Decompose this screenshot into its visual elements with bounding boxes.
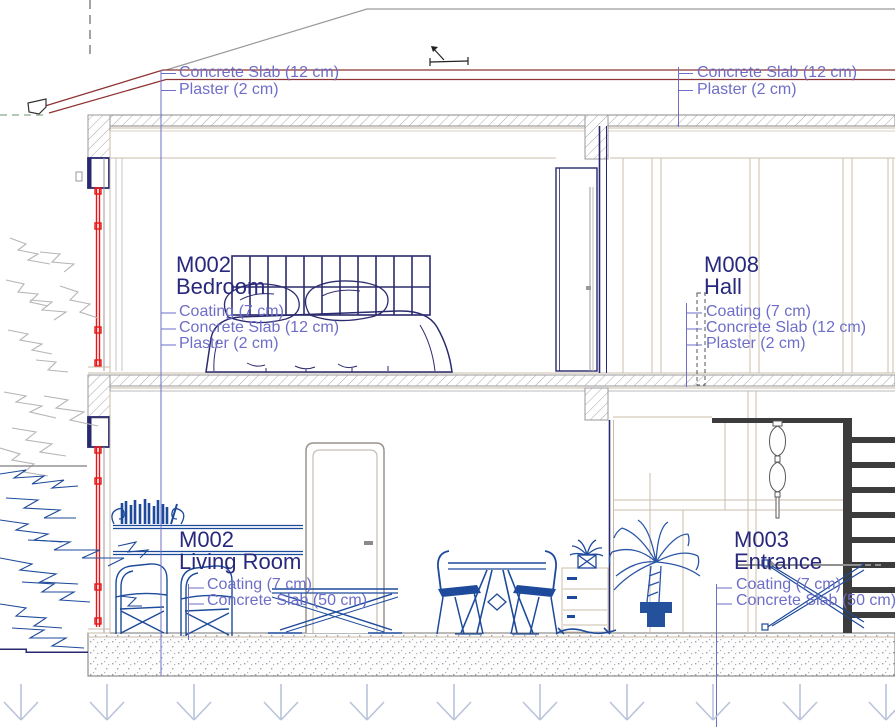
stair-treads — [852, 437, 895, 618]
room-code-hall[interactable]: M008 — [704, 254, 759, 276]
bedroom-door[interactable] — [556, 168, 597, 371]
layer-callout[interactable]: Concrete Slab (50 cm) — [207, 593, 367, 609]
layer-callout[interactable]: Coating (7 cm) — [179, 304, 284, 320]
potted-plant — [570, 540, 603, 568]
left-wall-window-lower[interactable] — [88, 391, 110, 633]
layer-callout[interactable]: Concrete Slab (50 cm) — [736, 593, 895, 609]
room-name-bedroom[interactable]: Bedroom — [176, 276, 265, 298]
layer-callout[interactable]: Plaster (2 cm) — [706, 336, 806, 352]
books — [122, 499, 177, 524]
door-handle — [364, 541, 373, 545]
hall-section-post[interactable] — [697, 293, 705, 385]
tree-sketch[interactable] — [0, 238, 148, 648]
layer-callout[interactable]: Coating (7 cm) — [706, 304, 811, 320]
chair-back — [438, 551, 449, 591]
room-name-living-room[interactable]: Living Room — [179, 551, 301, 573]
exterior-ground-line — [0, 649, 88, 652]
callout-leader-lines[interactable] — [161, 67, 732, 727]
palm-tree[interactable] — [609, 520, 700, 627]
room-code-entrance[interactable]: M003 — [734, 529, 789, 551]
roof-callout-left-line1[interactable]: Concrete Slab (12 cm) — [179, 65, 339, 81]
door-handle — [586, 286, 591, 290]
ground-slab[interactable] — [0, 633, 895, 676]
roof-callout-left-line2[interactable]: Plaster (2 cm) — [179, 82, 279, 98]
room-code-living-room[interactable]: M002 — [179, 529, 234, 551]
room-code-bedroom[interactable]: M002 — [176, 254, 231, 276]
dining-set[interactable] — [437, 551, 557, 634]
section-drawing-viewport: Concrete Slab (12 cm) Plaster (2 cm) Con… — [0, 0, 895, 727]
drawing-canvas[interactable] — [0, 0, 895, 727]
layer-callout[interactable]: Coating (7 cm) — [207, 577, 312, 593]
layer-callout[interactable]: Concrete Slab (12 cm) — [179, 320, 339, 336]
left-wall-window-upper[interactable] — [76, 131, 122, 373]
roof-callout-right-line2[interactable]: Plaster (2 cm) — [697, 82, 797, 98]
roof-slope-arrow-icon[interactable] — [430, 46, 468, 66]
ground-arrows — [4, 684, 895, 720]
layer-callout[interactable]: Coating (7 cm) — [736, 577, 841, 593]
ceiling-slab[interactable] — [88, 115, 895, 159]
layer-callout[interactable]: Plaster (2 cm) — [179, 336, 279, 352]
chair-back — [545, 551, 556, 591]
roof-callout-right-line1[interactable]: Concrete Slab (12 cm) — [697, 65, 857, 81]
eave-gutter-profile[interactable] — [28, 99, 46, 114]
chest-of-drawers[interactable] — [556, 540, 616, 634]
room-name-entrance[interactable]: Entrance — [734, 551, 822, 573]
floor-slab[interactable] — [88, 373, 895, 420]
layer-callout[interactable]: Concrete Slab (12 cm) — [706, 320, 866, 336]
stair-baluster — [770, 421, 786, 518]
room-name-hall[interactable]: Hall — [704, 276, 742, 298]
